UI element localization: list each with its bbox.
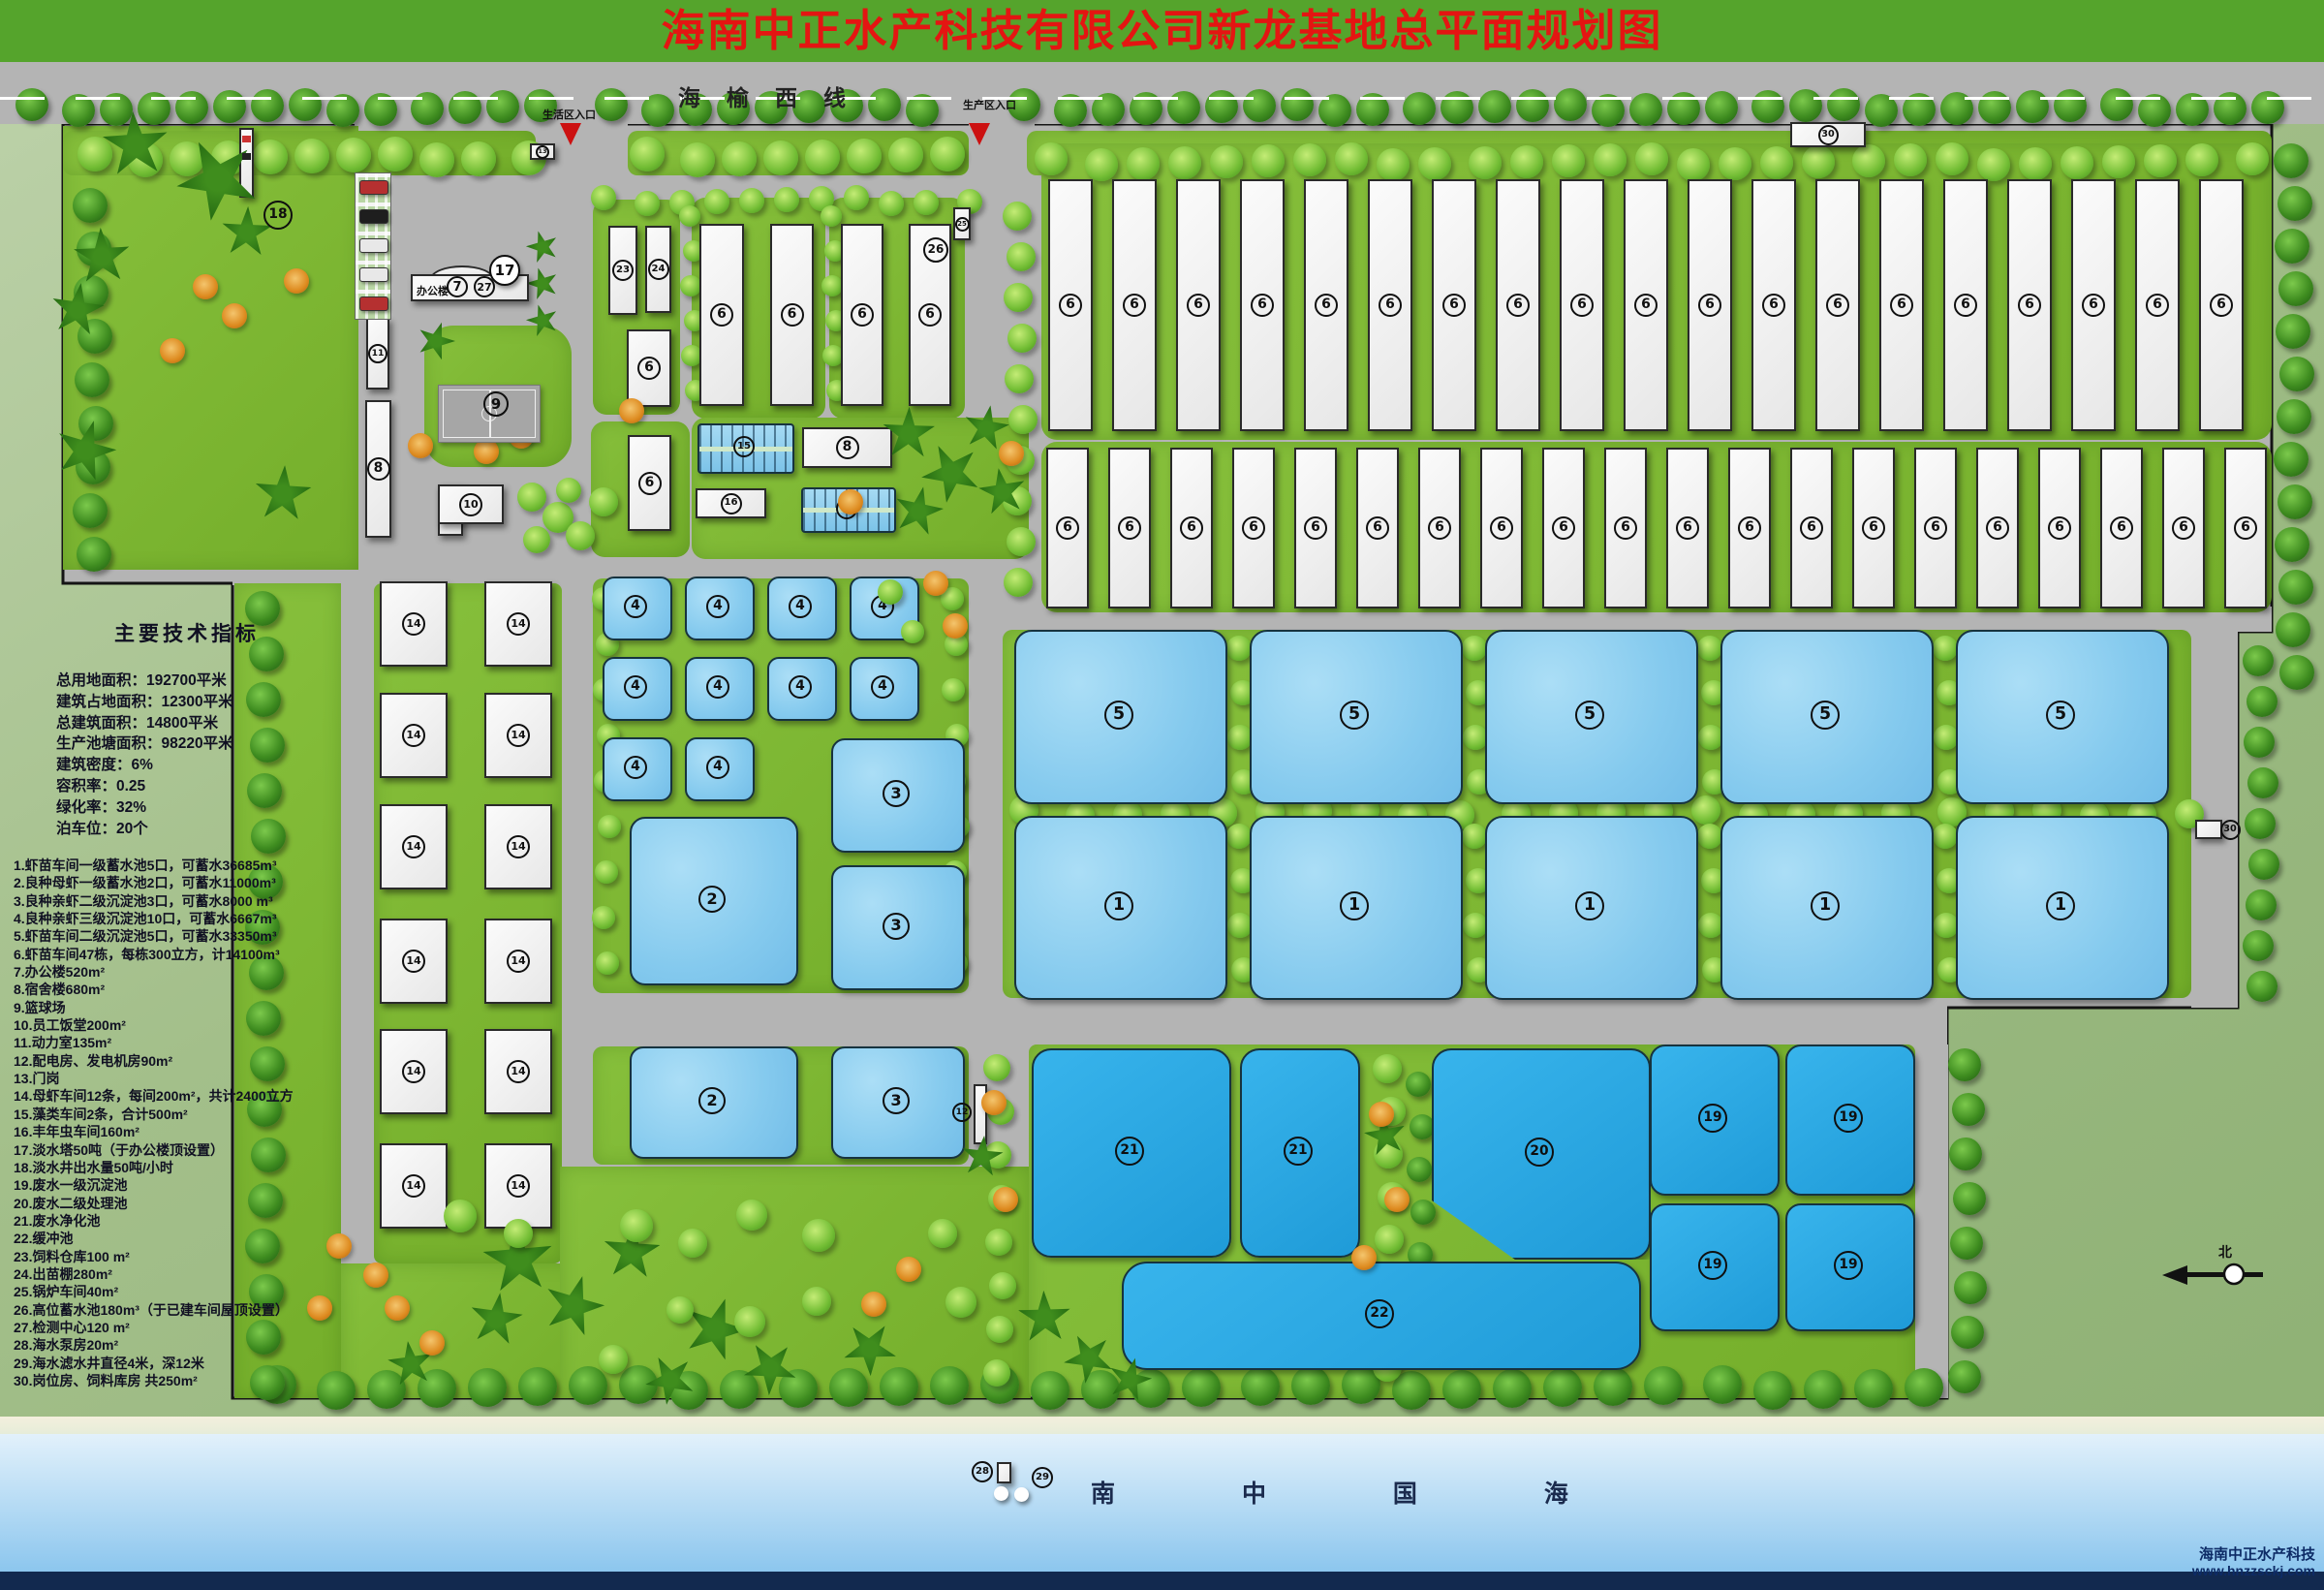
tech-line: 绿化率：32%	[56, 797, 318, 819]
tree-icon	[2245, 808, 2276, 839]
tree-icon	[1854, 1369, 1893, 1408]
tree-icon	[1802, 145, 1835, 178]
label-badge-6: 6	[918, 303, 942, 327]
orange-shrub-icon	[363, 1263, 388, 1288]
label-badge-1: 1	[2046, 891, 2075, 920]
tree-icon	[2247, 686, 2278, 717]
label-badge-9: 9	[483, 391, 509, 417]
tree-icon	[879, 191, 904, 216]
label-badge-14: 14	[402, 1060, 425, 1083]
tree-icon	[680, 142, 715, 177]
tree-icon	[1554, 88, 1587, 121]
tree-icon	[556, 478, 581, 503]
tree-icon	[1703, 1365, 1742, 1404]
legend-note-line: 16.丰年虫车间160m²	[14, 1123, 348, 1140]
label-badge-19: 19	[1698, 1104, 1727, 1133]
legend-note-line: 19.废水一级沉淀池	[14, 1176, 348, 1194]
tree-icon	[930, 137, 965, 171]
label-badge-6: 6	[1118, 516, 1141, 540]
label-badge-19: 19	[1698, 1251, 1727, 1280]
legend-note-line: 17.淡水塔50吨（于办公楼顶设置）	[14, 1141, 348, 1159]
label-badge-6: 6	[1059, 294, 1082, 317]
label-badge-1: 1	[1575, 891, 1604, 920]
label-badge-30: 30	[1818, 125, 1839, 145]
tech-indicators-title: 主要技术指标	[56, 618, 318, 647]
tree-icon	[596, 951, 619, 975]
tech-line: 泊车位：20个	[56, 819, 318, 840]
tree-icon	[289, 88, 322, 121]
legend-note-line: 15.藻类车间2条，合计500m²	[14, 1106, 348, 1123]
label-badge-6: 6	[1242, 516, 1265, 540]
label-badge-11: 11	[368, 344, 387, 363]
compass-north-label: 北	[2218, 1242, 2232, 1262]
tree-icon	[461, 141, 496, 176]
tree-icon	[680, 275, 701, 296]
label-badge-14: 14	[402, 950, 425, 973]
seawater-well-icon	[994, 1486, 1008, 1501]
highway-center-dash	[0, 97, 2324, 100]
tree-icon	[774, 187, 799, 212]
tree-icon	[880, 1367, 918, 1406]
label-badge-6: 6	[1506, 294, 1530, 317]
label-badge-5: 5	[1104, 701, 1133, 730]
label-badge-14: 14	[402, 835, 425, 858]
label-badge-14: 14	[507, 724, 530, 747]
label-badge-6: 6	[1676, 516, 1699, 540]
tree-icon	[1635, 142, 1668, 175]
label-badge-6: 6	[1862, 516, 1885, 540]
tree-icon	[2243, 930, 2274, 961]
label-badge-14: 14	[507, 1060, 530, 1083]
label-badge-26: 26	[923, 237, 948, 263]
label-badge-6: 6	[2048, 516, 2071, 540]
label-badge-19: 19	[1834, 1251, 1863, 1280]
tree-icon	[1293, 143, 1326, 176]
tree-icon	[1933, 824, 1958, 849]
orange-shrub-icon	[981, 1090, 1007, 1115]
tree-icon	[1751, 90, 1784, 123]
orange-shrub-icon	[923, 571, 948, 596]
label-badge-6: 6	[1366, 516, 1389, 540]
tree-icon	[2279, 655, 2314, 690]
tree-icon	[1953, 1182, 1986, 1215]
tree-icon	[1226, 824, 1252, 849]
tree-icon	[444, 1200, 477, 1232]
label-badge-14: 14	[507, 612, 530, 636]
tree-icon	[1182, 1368, 1221, 1407]
legend-note-line: 30.岗位房、饲料库房 共250m²	[14, 1372, 348, 1389]
tree-icon	[1905, 1368, 1943, 1407]
tree-icon	[2275, 527, 2309, 562]
legend-note-line: 27.检测中心120 m²	[14, 1319, 348, 1336]
tree-icon	[569, 1366, 607, 1405]
tree-icon	[679, 205, 700, 227]
tree-icon	[2054, 89, 2087, 122]
tech-line: 建筑占地面积：12300平米	[56, 692, 318, 713]
tree-icon	[15, 88, 48, 121]
label-badge-12: 12	[952, 1103, 972, 1122]
orange-shrub-icon	[385, 1295, 410, 1321]
tree-icon	[2185, 143, 2218, 176]
tree-icon	[734, 1306, 765, 1337]
tree-icon	[1031, 1371, 1069, 1410]
label-badge-4: 4	[624, 675, 647, 699]
tree-icon	[1407, 1157, 1432, 1182]
tree-icon	[2278, 484, 2312, 519]
label-badge-6: 6	[2018, 294, 2041, 317]
tree-icon	[1004, 568, 1033, 597]
tree-icon	[2236, 142, 2269, 175]
tree-icon	[75, 362, 109, 397]
tree-icon	[802, 1219, 835, 1252]
legend-note-line: 14.母虾车间12条，每间200m²，共计2400立方	[14, 1087, 348, 1105]
tree-icon	[73, 188, 108, 223]
green-block	[1041, 442, 2272, 612]
label-badge-5: 5	[1575, 701, 1604, 730]
tree-icon	[1760, 146, 1793, 179]
label-badge-6: 6	[2146, 294, 2169, 317]
label-badge-6: 6	[1490, 516, 1513, 540]
tree-icon	[1753, 1371, 1792, 1410]
building	[2195, 820, 2222, 839]
tree-icon	[983, 1359, 1010, 1387]
label-badge-6: 6	[2234, 516, 2257, 540]
label-badge-8: 8	[367, 457, 390, 481]
label-badge-5: 5	[1811, 701, 1840, 730]
tree-icon	[1933, 636, 1958, 661]
tree-icon	[213, 90, 246, 123]
tree-icon	[986, 1316, 1013, 1343]
legend-note-line: 21.废水净化池	[14, 1212, 348, 1230]
label-badge-4: 4	[706, 595, 729, 618]
tree-icon	[1252, 144, 1285, 177]
tree-icon	[77, 137, 112, 171]
tree-icon	[78, 406, 113, 441]
legend-note-line: 5.虾苗车间二级沉淀池5口，可蓄水33350m³	[14, 927, 348, 945]
label-badge-6: 6	[1826, 294, 1849, 317]
tree-icon	[1469, 146, 1502, 179]
label-badge-14: 14	[507, 835, 530, 858]
orange-shrub-icon	[1369, 1102, 1394, 1127]
label-badge-24: 24	[648, 259, 669, 280]
tree-icon	[722, 141, 757, 176]
label-badge-6: 6	[1698, 294, 1721, 317]
tree-icon	[1677, 148, 1710, 181]
site-plan-canvas: 海南中正水产科技有限公司新龙基地总平面规划图 44444444443232315…	[0, 0, 2324, 1590]
tree-icon	[630, 137, 665, 171]
tree-icon	[595, 860, 618, 884]
tree-icon	[1827, 88, 1860, 121]
label-badge-6: 6	[1056, 516, 1079, 540]
label-badge-6: 6	[2210, 294, 2233, 317]
orange-shrub-icon	[999, 441, 1024, 466]
tree-icon	[2016, 90, 2049, 123]
legend-note-line: 25.锅炉车间40m²	[14, 1283, 348, 1300]
tree-icon	[1644, 1366, 1683, 1405]
tree-icon	[983, 1054, 1010, 1081]
label-badge-7: 7	[447, 276, 468, 297]
watermark: 海南中正水产科技 www.hnzzsckj.com	[2185, 1546, 2315, 1578]
label-badge-2: 2	[698, 1087, 726, 1114]
label-badge-6: 6	[1180, 516, 1203, 540]
label-badge-5: 5	[1340, 701, 1369, 730]
tree-icon	[1952, 1093, 1985, 1126]
label-badge-6: 6	[1552, 516, 1575, 540]
label-badge-6: 6	[1634, 294, 1658, 317]
tree-icon	[847, 139, 882, 173]
label-badge-6: 6	[1251, 294, 1274, 317]
tree-icon	[1719, 147, 1751, 180]
highway-name: 海榆西线	[678, 79, 872, 112]
legend-note-line: 11.动力室135m²	[14, 1034, 348, 1051]
tree-icon	[1226, 636, 1252, 661]
tree-icon	[2275, 229, 2309, 264]
legend-note-line: 7.办公楼520m²	[14, 963, 348, 981]
label-badge-6: 6	[1890, 294, 1913, 317]
tree-icon	[1007, 324, 1037, 353]
label-badge-4: 4	[706, 756, 729, 779]
label-badge-6: 6	[1315, 294, 1338, 317]
tech-lines: 总用地面积：192700平米建筑占地面积：12300平米总建筑面积：14800平…	[56, 670, 318, 839]
tree-icon	[1977, 148, 2010, 181]
label-badge-1: 1	[1811, 891, 1840, 920]
tree-icon	[1543, 1368, 1582, 1407]
office-label: 办公楼	[417, 283, 449, 298]
tree-icon	[170, 141, 204, 176]
tree-icon	[2248, 849, 2279, 880]
tree-icon	[666, 1296, 694, 1324]
tree-icon	[1949, 1138, 1982, 1170]
tree-icon	[1948, 1048, 1981, 1081]
label-badge-6: 6	[1570, 294, 1594, 317]
orange-shrub-icon	[160, 338, 185, 363]
tree-icon	[1894, 143, 1927, 176]
orange-shrub-icon	[222, 303, 247, 328]
tree-icon	[720, 1370, 759, 1409]
legend-note-line: 9.篮球场	[14, 999, 348, 1016]
tree-icon	[1205, 90, 1238, 123]
orange-shrub-icon	[838, 489, 863, 514]
green-block	[560, 1167, 1031, 1398]
tree-icon	[1691, 795, 1720, 825]
tech-line: 容积率：0.25	[56, 776, 318, 797]
legend-note-line: 28.海水泵房20m²	[14, 1336, 348, 1354]
tree-icon	[914, 190, 939, 215]
tree-icon	[1035, 142, 1068, 175]
label-badge-25: 25	[955, 217, 970, 232]
tree-icon	[901, 620, 924, 643]
tree-icon	[2274, 442, 2309, 477]
tree-icon	[1004, 283, 1033, 312]
label-badge-6: 6	[1738, 516, 1761, 540]
tree-icon	[704, 189, 729, 214]
tree-icon	[2246, 889, 2277, 920]
tech-line: 建筑密度：6%	[56, 755, 318, 776]
label-badge-6: 6	[1442, 294, 1466, 317]
tree-icon	[1281, 88, 1314, 121]
watermark-url: www.hnzzsckj.com	[2185, 1563, 2315, 1578]
tree-icon	[253, 140, 288, 174]
car-icon	[359, 267, 388, 282]
tree-icon	[942, 678, 965, 701]
label-badge-4: 4	[789, 595, 812, 618]
label-badge-14: 14	[402, 1174, 425, 1198]
tree-icon	[1168, 146, 1201, 179]
car-icon	[359, 238, 388, 253]
label-badge-6: 6	[1123, 294, 1146, 317]
tree-icon	[2279, 357, 2314, 391]
road	[341, 998, 1947, 1044]
tree-icon	[620, 1209, 653, 1242]
tree-icon	[2247, 971, 2278, 1002]
label-badge-29: 29	[1032, 1467, 1053, 1488]
tree-icon	[2278, 570, 2313, 605]
legend-note-line: 23.饲料仓库100 m²	[14, 1248, 348, 1265]
tree-icon	[2276, 314, 2310, 349]
tree-icon	[592, 906, 615, 929]
label-badge-20: 20	[1525, 1138, 1554, 1167]
building	[997, 1462, 1011, 1483]
label-badge-17: 17	[489, 255, 520, 286]
tree-icon	[1462, 636, 1487, 661]
tree-icon	[868, 88, 901, 121]
tree-icon	[2100, 88, 2133, 121]
label-badge-6: 6	[1187, 294, 1210, 317]
tree-icon	[517, 483, 546, 512]
tree-icon	[2278, 271, 2313, 306]
label-badge-6: 6	[710, 303, 733, 327]
label-badge-4: 4	[624, 756, 647, 779]
legend-note-line: 6.虾苗车间47栋，每栋300立方，计14100m³	[14, 946, 348, 963]
tree-icon	[2144, 144, 2177, 177]
tree-icon	[985, 1229, 1012, 1256]
tree-icon	[1936, 142, 1968, 175]
label-badge-3: 3	[883, 780, 910, 807]
tree-icon	[2274, 143, 2309, 178]
tree-icon	[1335, 142, 1368, 175]
tree-icon	[2276, 612, 2310, 647]
label-badge-8: 8	[836, 436, 859, 459]
tech-line: 总建筑面积：14800平米	[56, 713, 318, 734]
label-badge-6: 6	[1954, 294, 1977, 317]
tree-icon	[1442, 1370, 1481, 1409]
tree-icon	[599, 1345, 628, 1374]
tree-icon	[1697, 824, 1722, 849]
legend-note-line: 1.虾苗车间一级蓄水池5口，可蓄水36685m³	[14, 857, 348, 874]
tree-icon	[1954, 1271, 1987, 1304]
tree-icon	[821, 205, 842, 227]
tree-icon	[2277, 399, 2311, 434]
label-badge-14: 14	[402, 724, 425, 747]
production-entrance-arrow-icon	[969, 123, 990, 145]
tree-icon	[77, 537, 111, 572]
tech-line: 总用地面积：192700平米	[56, 670, 318, 692]
tree-icon	[1410, 1200, 1436, 1225]
label-badge-21: 21	[1115, 1137, 1144, 1166]
tree-icon	[591, 185, 616, 210]
tree-icon	[378, 137, 413, 171]
tree-icon	[2244, 727, 2275, 758]
label-badge-6: 6	[638, 472, 662, 495]
label-badge-14: 14	[507, 1174, 530, 1198]
tree-icon	[523, 526, 550, 553]
tree-icon	[1003, 202, 1032, 231]
tree-icon	[73, 493, 108, 528]
tree-icon	[504, 1219, 533, 1248]
tree-icon	[419, 142, 454, 177]
tree-icon	[1697, 636, 1722, 661]
tree-icon	[251, 89, 284, 122]
tree-icon	[1127, 147, 1160, 180]
tree-icon	[1493, 1369, 1532, 1408]
label-badge-15: 15	[733, 436, 755, 457]
tree-icon	[2243, 645, 2274, 676]
tree-icon	[1410, 1114, 1435, 1139]
car-icon	[359, 180, 388, 195]
orange-shrub-icon	[284, 268, 309, 294]
living-entrance-arrow-icon	[560, 123, 581, 145]
tree-icon	[945, 1287, 976, 1318]
tree-icon	[1852, 144, 1885, 177]
tree-icon	[1007, 527, 1036, 556]
label-badge-14: 14	[507, 950, 530, 973]
label-badge-1: 1	[1340, 891, 1369, 920]
tree-icon	[802, 1287, 831, 1316]
tree-icon	[805, 140, 840, 174]
tree-icon	[2247, 767, 2278, 798]
tree-icon	[1950, 1227, 1983, 1260]
gate-marker-red	[242, 136, 251, 142]
tree-icon	[1594, 1367, 1632, 1406]
seawater-well-icon	[1014, 1487, 1029, 1502]
tree-icon	[878, 579, 903, 605]
label-badge-30: 30	[2220, 820, 2241, 840]
tree-icon	[1552, 144, 1585, 177]
orange-shrub-icon	[896, 1257, 921, 1282]
tree-icon	[294, 139, 329, 173]
watermark-company: 海南中正水产科技	[2185, 1546, 2315, 1563]
tree-icon	[1406, 1072, 1431, 1097]
label-badge-18: 18	[263, 201, 293, 230]
tree-icon	[1085, 148, 1118, 181]
label-badge-6: 6	[1762, 294, 1785, 317]
tree-icon	[928, 1219, 957, 1248]
tree-icon	[678, 1229, 707, 1258]
tree-icon	[468, 1368, 507, 1407]
legend-note-line: 13.门岗	[14, 1070, 348, 1087]
label-badge-3: 3	[883, 1087, 910, 1114]
label-badge-6: 6	[2082, 294, 2105, 317]
label-badge-4: 4	[624, 595, 647, 618]
label-badge-6: 6	[2110, 516, 2133, 540]
tree-icon	[763, 140, 798, 175]
car-icon	[359, 209, 388, 224]
legend-note-line: 18.淡水井出水量50吨/小时	[14, 1159, 348, 1176]
orange-shrub-icon	[861, 1292, 886, 1317]
label-badge-6: 6	[1986, 516, 2009, 540]
tree-icon	[2278, 186, 2312, 221]
compass-icon	[2158, 1238, 2275, 1306]
label-badge-2: 2	[698, 886, 726, 913]
tree-icon	[566, 521, 595, 550]
label-badge-6: 6	[1379, 294, 1402, 317]
label-badge-23: 23	[612, 260, 634, 281]
label-badge-6: 6	[1800, 516, 1823, 540]
legend-note-line: 10.员工饭堂200m²	[14, 1016, 348, 1034]
tree-icon	[2019, 147, 2052, 180]
legend-note-line: 29.海水滤水井直径4米，深12米	[14, 1355, 348, 1372]
label-badge-19: 19	[1834, 1104, 1863, 1133]
